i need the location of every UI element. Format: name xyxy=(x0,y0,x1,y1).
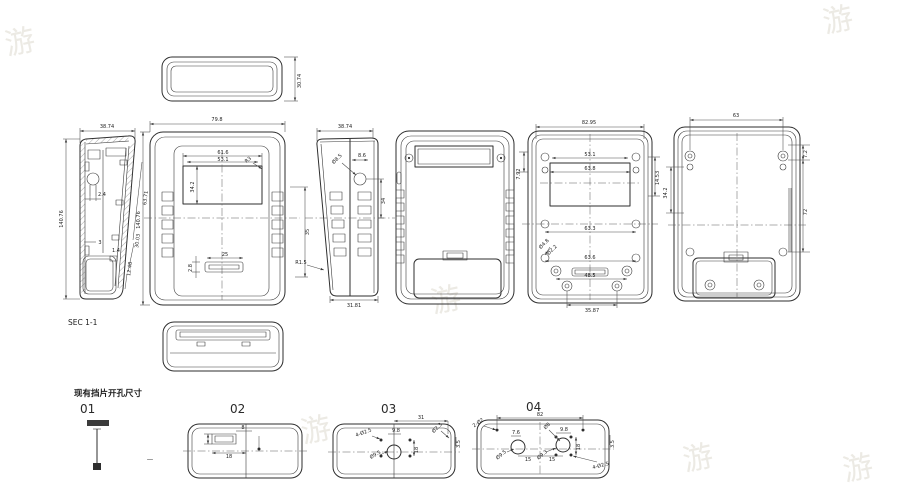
dim-front-window-inner: 53.1 xyxy=(217,157,228,163)
dim-side-hole-dia: Ø8.5 xyxy=(330,152,343,165)
dim-d04-s1: 15 xyxy=(525,457,531,463)
detail-03-view: 31 4-Ø2.5 9.8 Ø2.3 Ø9.5 18 3.5 xyxy=(328,415,462,478)
dim-front-height: 140.76 xyxy=(136,211,142,229)
dim-front-right: 35 xyxy=(305,229,311,235)
dim-backinner-width: 82.95 xyxy=(582,120,596,126)
dim-d03-corner: Ø2.3 xyxy=(430,421,443,434)
dim-d02-slot-width: 18 xyxy=(226,454,232,460)
watermark-glyph: 游 xyxy=(298,410,335,450)
dim-d04-a: 7.6 xyxy=(512,430,520,436)
detail-02-view: 8 18 xyxy=(183,424,307,478)
dim-front-width: 79.8 xyxy=(211,117,222,123)
dim-sec-boss: 2.4 xyxy=(98,192,106,198)
view-front: 79.8 140.76 61.6 53.1 34.2 R3 35 2.8 25 xyxy=(136,117,311,305)
watermark-glyph: 游 xyxy=(2,22,39,62)
dim-d04-top-dia: Ø8 xyxy=(542,421,552,431)
dim-front-window-outer: 61.6 xyxy=(217,150,228,156)
dim-backinner-low1: 63.6 xyxy=(584,255,595,261)
view-side: 38.74 Ø8.5 8.6 34 31.81 R1.5 xyxy=(295,124,395,309)
note-text: 现有挡片开孔尺寸 xyxy=(74,388,143,399)
view-back-inner: 82.95 53.1 63.8 7.92 14.53 63.3 Ø4.8 Ø2.… xyxy=(516,120,661,314)
dim-d03-hole-dia: Ø9.5 xyxy=(368,449,382,461)
dim-d04-hole-right: Ø9.3 xyxy=(535,448,549,461)
detail-01-dash: — xyxy=(147,455,154,463)
dim-side-flare-radius: R1.5 xyxy=(295,260,306,266)
tiny-label-smudge xyxy=(87,420,109,426)
back-grip-ribs xyxy=(396,190,514,263)
dim-backinner-win1: 53.1 xyxy=(584,152,595,158)
dim-backinner-low2: 48.5 xyxy=(584,273,595,279)
dim-side-hole-vert: 34 xyxy=(381,198,387,204)
dim-d04-s2: 15 xyxy=(549,457,555,463)
dim-d04-holes: 4-Ø2.5 xyxy=(592,460,610,471)
dim-side-width: 38.74 xyxy=(338,124,352,130)
detail-01-view: — xyxy=(87,420,154,470)
dim-front-slot-height: 2.8 xyxy=(188,264,194,272)
dim-d04-hole-left: Ø9.5 xyxy=(494,448,508,461)
view-bottom-cap xyxy=(163,322,283,371)
dim-d04-edge: 3.5 xyxy=(610,440,616,448)
watermark-glyph: 游 xyxy=(820,0,857,40)
dim-d04-vert: 18 xyxy=(576,444,582,450)
dim-sec-peg: 1.4 xyxy=(112,248,120,254)
cad-drawing-sheet: 游 游 游 游 游 游 30.74 38.74 140.76 2.4 3 63.… xyxy=(0,0,900,500)
screw-posts xyxy=(685,151,788,256)
watermark-glyph: 游 xyxy=(840,448,877,488)
dim-sec-slant2: 30.03 xyxy=(134,233,142,248)
view-top-cap: 30.74 xyxy=(162,57,303,101)
section-label: SEC 1-1 xyxy=(68,318,98,327)
dim-sec-width: 38.74 xyxy=(100,124,114,130)
dim-frontinner-right: 72 xyxy=(803,209,809,215)
dim-d03-vert: 18 xyxy=(414,447,420,453)
detail-row: 现有挡片开孔尺寸 01 02 03 04 — 8 18 xyxy=(74,388,616,478)
dim-backinner-low3: 35.87 xyxy=(585,308,599,314)
dim-backinner-mid: 63.3 xyxy=(584,226,595,232)
dim-sec-height: 140.76 xyxy=(59,210,65,228)
dim-side-bottom: 31.81 xyxy=(347,303,361,309)
dim-d03-width: 31 xyxy=(418,415,424,421)
watermark-glyph: 游 xyxy=(428,280,465,320)
dim-d03-edge: 3.5 xyxy=(456,440,462,448)
dim-d02-slot-height: 8 xyxy=(241,425,244,431)
watermark-glyph: 游 xyxy=(680,438,717,478)
dim-frontinner-left: 34.2 xyxy=(663,187,669,198)
detail-01-label: 01 xyxy=(80,402,95,416)
view-back xyxy=(396,131,514,304)
dim-frontinner-right-top: 7.2 xyxy=(803,150,809,158)
detail-04-view: 2-Ø2 82 7.6 Ø9.5 Ø8 9.8 Ø9.3 18 15 15 4-… xyxy=(471,412,616,478)
dim-backinner-left: 7.92 xyxy=(516,168,522,179)
dim-sec-slant1: 63.71 xyxy=(142,190,150,205)
front-grip-ribs xyxy=(162,192,283,257)
view-front-inner: 63 34.2 7.2 72 xyxy=(663,113,810,301)
dim-sec-rib: 3 xyxy=(98,240,101,246)
dim-front-window-height: 34.2 xyxy=(190,181,196,192)
dim-backinner-right: 14.53 xyxy=(655,171,661,185)
watermarks: 游 游 游 游 游 游 xyxy=(2,0,877,488)
dim-front-corner-radius: R3 xyxy=(244,156,253,165)
detail-02-label: 02 xyxy=(230,402,245,416)
drawing-canvas: 游 游 游 游 游 游 30.74 38.74 140.76 2.4 3 63.… xyxy=(0,0,900,500)
dim-backinner-win2: 63.8 xyxy=(584,166,595,172)
detail-03-label: 03 xyxy=(381,402,396,416)
dim-d04-pitch: 9.8 xyxy=(560,427,568,433)
dim-front-slot-width: 25 xyxy=(222,252,228,258)
dim-sec-slant3: 12.48 xyxy=(126,261,134,276)
dim-side-hole-offset: 8.6 xyxy=(358,153,366,159)
dim-d04-width: 82 xyxy=(537,412,543,418)
dim-frontinner-width: 63 xyxy=(733,113,739,119)
dim-topcap-height: 30.74 xyxy=(297,74,303,88)
dim-d03-pitch: 9.8 xyxy=(392,428,400,434)
